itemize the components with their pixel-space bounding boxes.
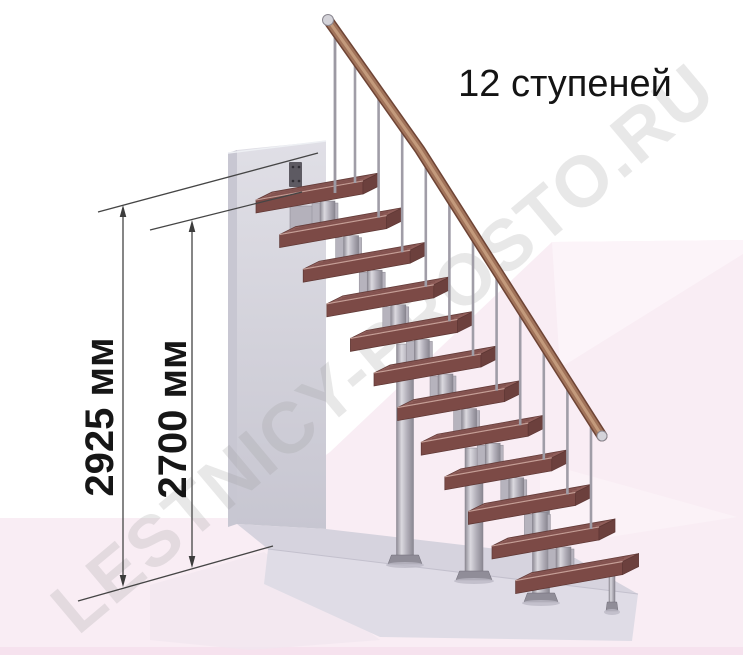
spine-column-c-base-shadow bbox=[522, 600, 560, 606]
bottom-step-leg-base-shadow bbox=[604, 609, 620, 615]
illustration-stage: LESTNICY-PROSTO.RU 2925 мм 2700 мм 12 ст… bbox=[0, 0, 743, 655]
plate-screw-hole bbox=[298, 166, 301, 169]
plate-screw-hole bbox=[298, 180, 301, 183]
plate-screw-hole bbox=[292, 166, 295, 169]
handrail-top-cap bbox=[323, 15, 334, 26]
spine-column-a-base-shadow bbox=[386, 562, 424, 568]
dimension-label-2700: 2700 мм bbox=[151, 339, 195, 498]
wall-mount-plate bbox=[289, 162, 302, 187]
handrail-end-cap bbox=[597, 431, 607, 441]
page-title: 12 ступеней bbox=[458, 63, 672, 105]
dimension-label-2925: 2925 мм bbox=[78, 337, 122, 496]
plate-screw-hole bbox=[292, 180, 295, 183]
background-bottom-strip bbox=[0, 647, 743, 655]
spine-column-b-base-shadow bbox=[454, 578, 494, 584]
staircase-diagram: LESTNICY-PROSTO.RU 2925 мм 2700 мм 12 ст… bbox=[0, 0, 743, 655]
bottom-step-leg bbox=[609, 574, 615, 603]
